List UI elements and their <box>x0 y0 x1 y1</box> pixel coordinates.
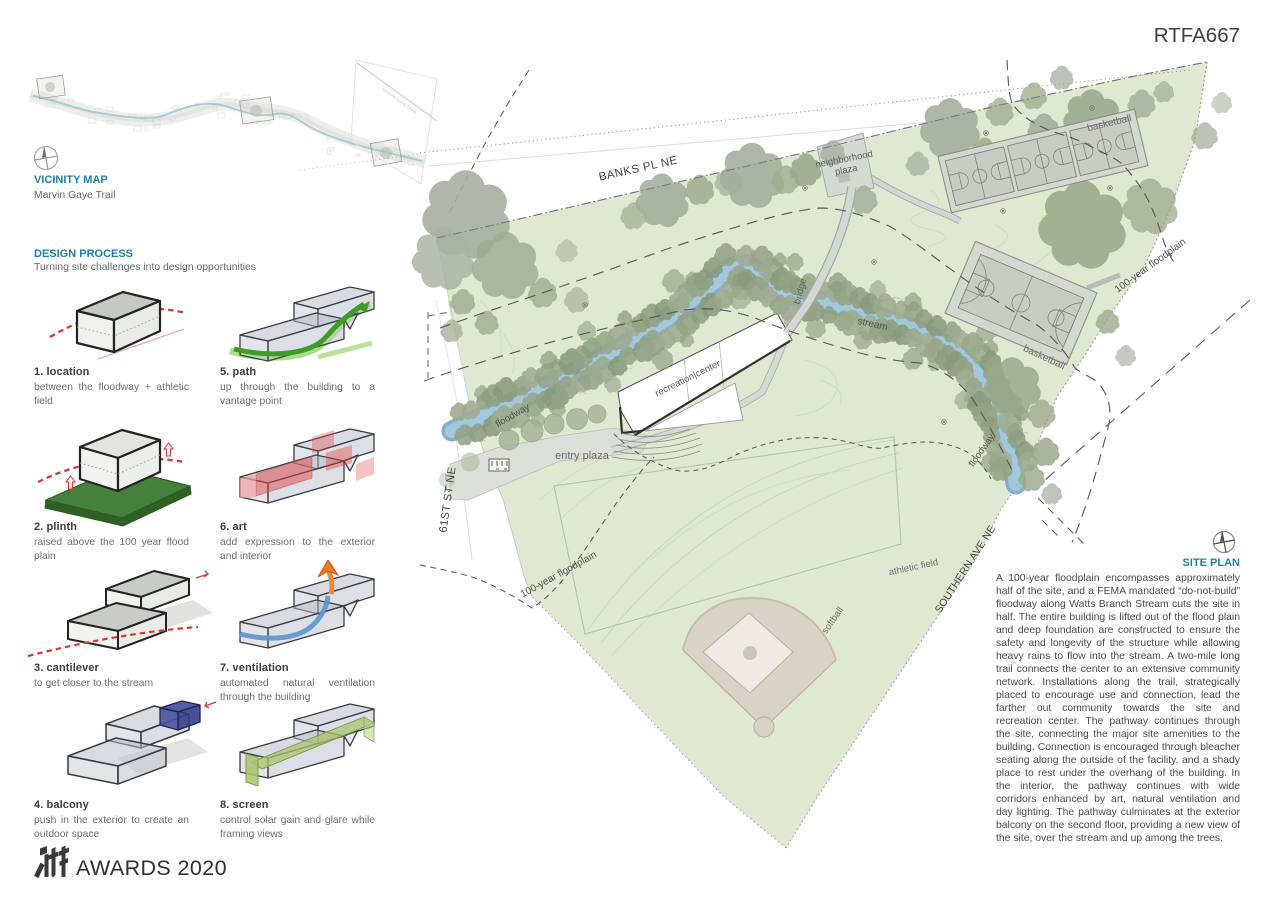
svg-text:MARVIN GAYE TRAIL: MARVIN GAYE TRAIL <box>381 87 418 116</box>
svg-text:entry plaza: entry plaza <box>555 450 610 462</box>
